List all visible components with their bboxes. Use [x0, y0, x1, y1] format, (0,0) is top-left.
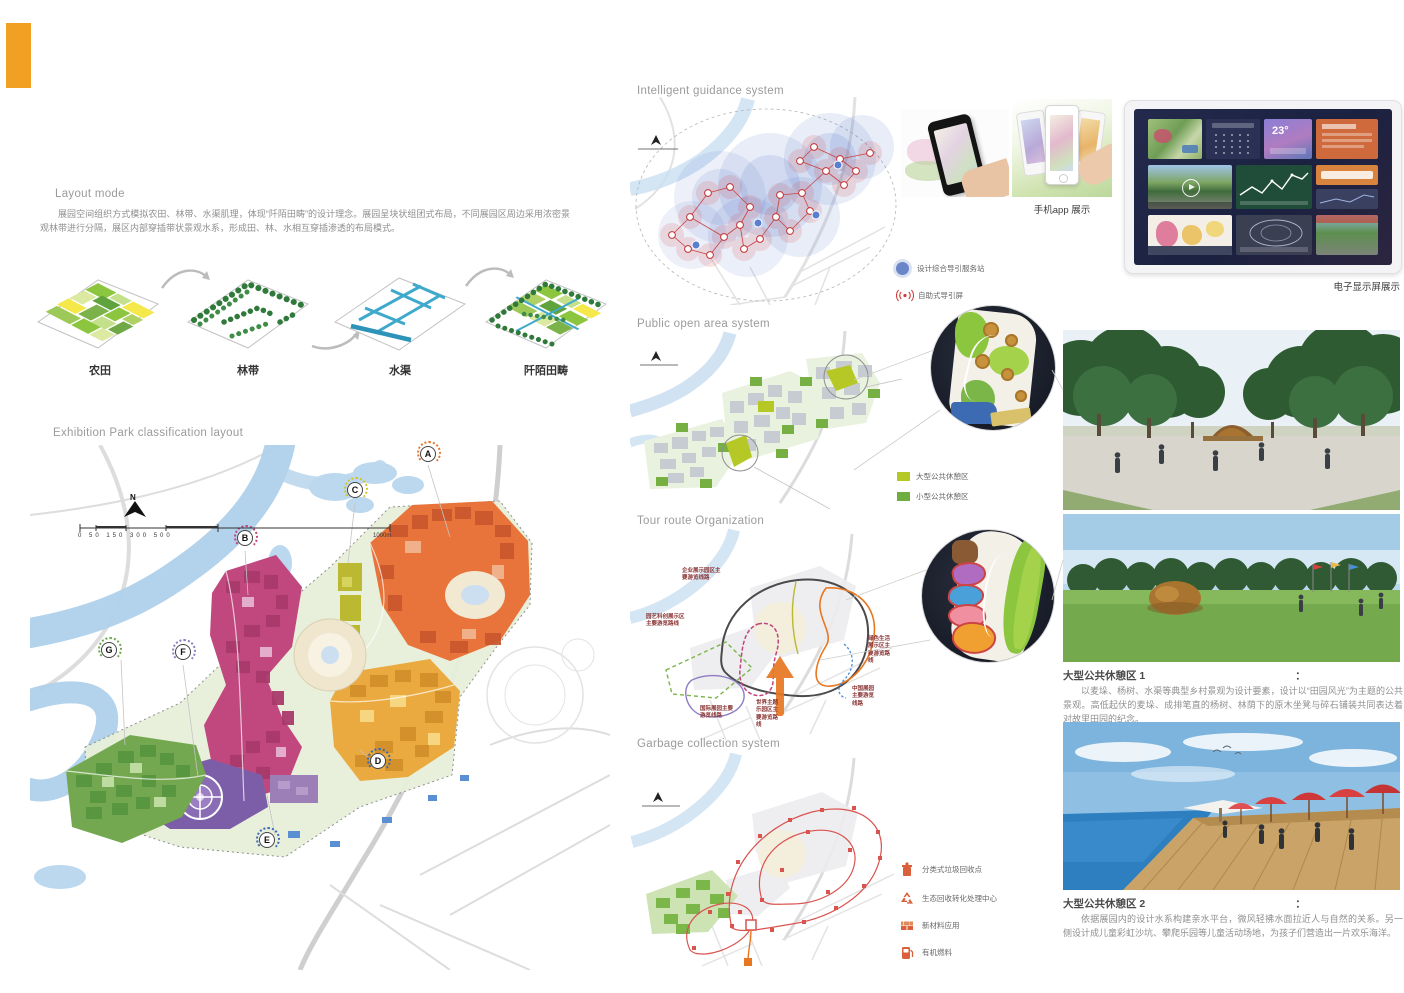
tour-route-label: 中国展园主要游览线路	[852, 686, 878, 708]
legend-label: 生态回收转化处理中心	[922, 893, 997, 904]
tour-route-label: 世界主题乐园区主要游览路线	[756, 700, 782, 730]
tour-route-map: 企业展示园区主要游览线路 园艺科创展示区主要游览路线 绿色生活展示区主要游览路线…	[630, 528, 902, 740]
combined-fields-diagram	[478, 264, 613, 356]
legend-label: 新材料应用	[922, 920, 960, 931]
playground-detail-inset-2	[922, 530, 1054, 662]
garbage-map	[630, 752, 910, 966]
orange-corner-mark	[6, 23, 31, 88]
zone-marker-d: D	[365, 748, 391, 774]
rest-area-1-heading: 大型公共休憩区 1	[1063, 668, 1145, 683]
small-rest-chip	[897, 492, 910, 501]
tour-route-label: 绿色生活展示区主要游览路线	[868, 636, 892, 666]
legend-label: 分类式垃圾回收点	[922, 864, 982, 875]
zone-marker-a: A	[415, 441, 441, 467]
tile-calendar	[1206, 119, 1260, 159]
north-arrow-icon	[122, 501, 148, 521]
tile-plan-map	[1148, 215, 1232, 255]
guidance-map	[630, 97, 902, 305]
guidance-legend-screen: 自助式导引屏	[896, 289, 1026, 302]
phone-caption: 手机app 展示	[1008, 202, 1116, 216]
tablet-screen: 23°	[1134, 109, 1392, 265]
rest-area-2-colon: ：	[1295, 896, 1306, 911]
legend-label: 小型公共休憩区	[916, 491, 969, 502]
tour-route-label: 企业展示园区主要游览线路	[682, 568, 724, 583]
rest-area-photo-lawn	[1063, 514, 1400, 662]
rest-area-2-body: 依据展园内的设计水系构建亲水平台，微风轻拂水面拉近人与自然的关系。另一侧设计成儿…	[1063, 913, 1403, 941]
weather-temp: 23°	[1272, 125, 1289, 137]
garbage-map-graphic	[630, 752, 910, 966]
tile-search	[1316, 165, 1378, 185]
layout-mode-paragraph: 展园空间组织方式模拟农田、林带、水渠肌理，体现“阡陌田畴”的设计理念。展园呈块状…	[40, 207, 570, 236]
garbage-legend-row: 新材料应用	[900, 919, 1050, 931]
step-label-combined: 阡陌田畴	[496, 362, 596, 378]
zone-marker-e: E	[254, 827, 280, 853]
legend-small-rest: 小型公共休憩区	[897, 491, 1027, 502]
tile-notice	[1316, 119, 1378, 159]
tile-weather: 23°	[1264, 119, 1312, 159]
rest-area-photo-waterfront	[1063, 722, 1400, 890]
layout-mode-title: Layout mode	[55, 188, 125, 200]
fuel-icon	[900, 945, 914, 960]
tile-transit	[1316, 189, 1378, 209]
guidance-legend-label: 设计综合导引服务站	[917, 263, 985, 274]
large-rest-chip	[897, 472, 910, 481]
legend-label: 大型公共休憩区	[916, 471, 969, 482]
garbage-legend-row: 生态回收转化处理中心	[900, 891, 1050, 905]
rest-area-2-heading: 大型公共休憩区 2	[1063, 896, 1145, 911]
rest-area-detail-inset-1	[931, 306, 1055, 430]
tile-park-map	[1148, 119, 1202, 159]
tour-route-label: 国际展园主要游览线路	[700, 706, 734, 721]
farmland-diagram	[30, 264, 165, 356]
tile-chart	[1236, 165, 1312, 209]
phone-photo-hand	[901, 109, 1009, 197]
tile-video	[1148, 165, 1232, 209]
public-area-map	[630, 331, 902, 509]
guide-station-icon	[896, 262, 909, 275]
tile-road-photo	[1316, 215, 1378, 255]
public-area-map-graphic	[630, 331, 902, 509]
scale-ticks: 0 50 150 300 500	[78, 533, 173, 539]
water-channel-diagram	[325, 264, 473, 356]
guidance-legend-station: 设计综合导引服务站	[896, 262, 1026, 275]
wireless-screen-icon	[896, 289, 914, 302]
step-label-channel: 水渠	[350, 362, 450, 378]
screen-caption: 电子显示屏展示	[1240, 279, 1400, 293]
bricks-icon	[900, 919, 914, 931]
rest-area-1-colon: ：	[1295, 668, 1306, 683]
zone-marker-f: F	[170, 639, 196, 665]
guidance-legend-label: 自助式导引屏	[918, 290, 963, 301]
step-label-farmland: 农田	[50, 362, 150, 378]
garbage-legend-row: 分类式垃圾回收点	[900, 862, 1050, 877]
garbage-title: Garbage collection system	[637, 738, 780, 750]
rest-area-2-text: 大型公共休憩区 2 ： 依据展园内的设计水系构建亲水平台，微风轻拂水面拉近人与自…	[1063, 896, 1403, 941]
zone-marker-g: G	[96, 637, 122, 663]
tour-route-label: 园艺科创展示区主要游览路线	[646, 614, 686, 629]
classification-map: A B C D E F G N	[30, 445, 610, 970]
presentation-board: Layout mode 展园空间组织方式模拟农田、林带、水渠肌理，体现“阡陌田畴…	[0, 0, 1404, 993]
garbage-legend-row: 有机燃料	[900, 945, 1050, 960]
recycle-icon	[900, 891, 914, 905]
tour-route-title: Tour route Organization	[637, 515, 764, 527]
classification-title: Exhibition Park classification layout	[53, 427, 243, 439]
north-and-scale: N 0 50 150 300 500 1000m	[78, 493, 398, 538]
tile-dark-map	[1236, 215, 1312, 255]
rest-area-photo-avenue	[1063, 330, 1400, 510]
step-label-forest: 林带	[198, 362, 298, 378]
forest-belt-diagram	[180, 264, 315, 356]
rest-area-1-text: 大型公共休憩区 1 ： 以麦垛、杨树、水渠等典型乡村景观为设计要素，设计以“田园…	[1063, 668, 1403, 727]
phone-photo-app	[1012, 99, 1112, 197]
guidance-title: Intelligent guidance system	[637, 85, 784, 97]
public-area-title: Public open area system	[637, 318, 770, 330]
legend-large-rest: 大型公共休憩区	[897, 471, 1027, 482]
rest-area-1-body: 以麦垛、杨树、水渠等典型乡村景观为设计要素，设计以“田园风光”为主题的公共景观。…	[1063, 685, 1403, 727]
layout-mode-diagrams: 农田 林带 水渠 阡陌田畴	[30, 258, 590, 378]
trash-bin-icon	[900, 862, 914, 877]
legend-label: 有机燃料	[922, 947, 952, 958]
guidance-map-graphic	[630, 97, 902, 305]
public-area-legend: 大型公共休憩区 小型公共休憩区	[897, 471, 1027, 511]
scale-end-label: 1000m	[373, 533, 391, 539]
tablet-display: 23°	[1124, 100, 1402, 274]
garbage-legend: 分类式垃圾回收点 生态回收转化处理中心 新材料应用 有机燃	[900, 862, 1050, 974]
